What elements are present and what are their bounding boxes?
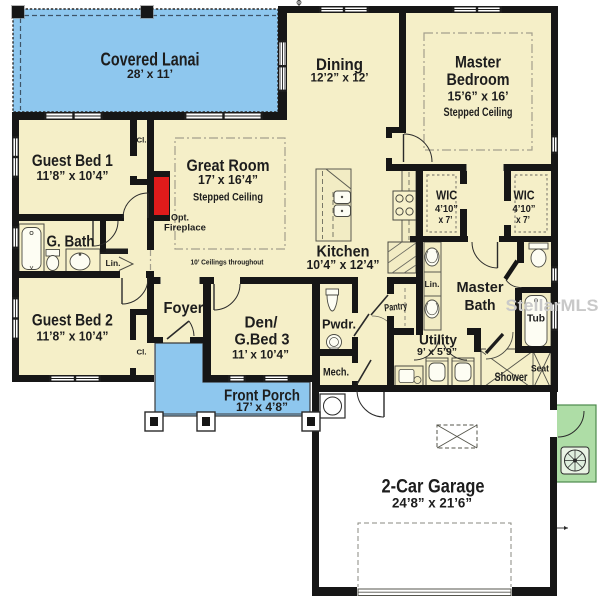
svg-text:Den/: Den/ (245, 315, 279, 332)
svg-text:Stepped Ceiling: Stepped Ceiling (444, 107, 513, 119)
svg-text:Fireplace: Fireplace (164, 223, 206, 234)
svg-text:9’ x 5’9”: 9’ x 5’9” (417, 346, 457, 358)
svg-text:2-Car Garage: 2-Car Garage (382, 477, 485, 498)
svg-text:Shower: Shower (495, 372, 528, 384)
svg-text:10’ Ceilings throughout: 10’ Ceilings throughout (191, 260, 265, 267)
svg-text:Bedroom: Bedroom (447, 70, 510, 89)
svg-text:Foyer: Foyer (164, 300, 204, 317)
svg-text:17’ x 16’4”: 17’ x 16’4” (198, 173, 258, 187)
svg-text:11’ x 10’4”: 11’ x 10’4” (232, 348, 289, 362)
svg-text:11’8” x 10’4”: 11’8” x 10’4” (36, 329, 108, 344)
svg-text:Master: Master (457, 279, 504, 296)
svg-text:15’6” x 16’: 15’6” x 16’ (448, 89, 509, 104)
svg-text:12’2” x 12’: 12’2” x 12’ (311, 71, 369, 85)
svg-text:24’8” x 21’6”: 24’8” x 21’6” (392, 496, 472, 511)
svg-text:Stepped Ceiling: Stepped Ceiling (193, 192, 263, 204)
svg-text:Seat: Seat (531, 364, 550, 375)
svg-text:Pwdr.: Pwdr. (322, 317, 356, 332)
svg-text:Lin.: Lin. (425, 279, 440, 289)
svg-text:WIC: WIC (514, 188, 535, 203)
svg-text:x 7’: x 7’ (516, 215, 530, 226)
svg-text:StellarMLS: StellarMLS (506, 297, 599, 315)
svg-text:10’4” x 12’4”: 10’4” x 12’4” (307, 258, 380, 272)
svg-text:Lin.: Lin. (106, 258, 121, 268)
svg-text:x 7’: x 7’ (439, 215, 453, 226)
svg-text:Bath: Bath (465, 297, 496, 314)
svg-text:4’10”: 4’10” (435, 204, 458, 215)
svg-text:G. Bath: G. Bath (47, 234, 95, 251)
svg-text:Guest Bed 2: Guest Bed 2 (32, 312, 113, 330)
svg-text:11’8” x 10’4”: 11’8” x 10’4” (36, 168, 108, 183)
svg-text:Cl.: Cl. (137, 348, 147, 357)
svg-text:G.Bed 3: G.Bed 3 (235, 332, 290, 349)
svg-text:WIC: WIC (436, 188, 457, 203)
svg-text:Mech.: Mech. (323, 367, 349, 379)
svg-text:Cl.: Cl. (137, 136, 147, 145)
svg-text:17’ x 4’8”: 17’ x 4’8” (236, 400, 288, 414)
svg-text:28’ x 11’: 28’ x 11’ (127, 67, 173, 81)
svg-text:4’10”: 4’10” (513, 204, 536, 215)
svg-text:Master: Master (455, 53, 501, 72)
